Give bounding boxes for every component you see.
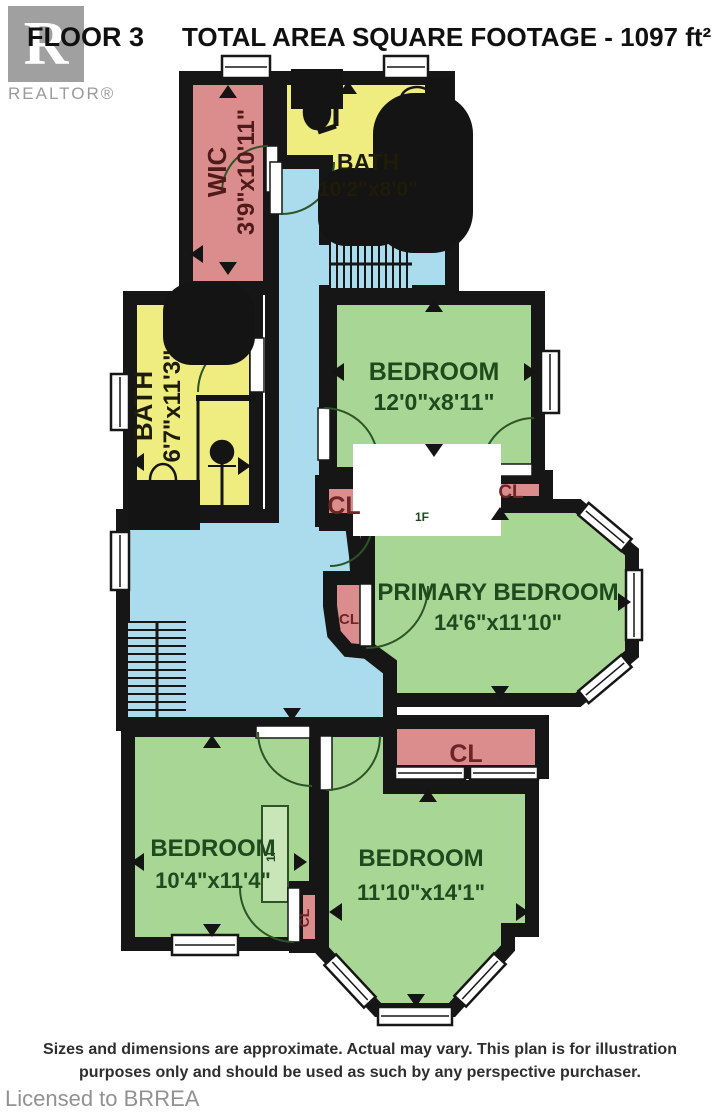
room-label: CL xyxy=(449,740,482,768)
room-label: CL xyxy=(498,482,524,503)
room-label: 14'6"x11'10" xyxy=(434,610,562,635)
window xyxy=(626,570,642,640)
window xyxy=(378,1007,452,1025)
room-label: BATH xyxy=(337,149,399,175)
room-label: CL xyxy=(296,908,312,927)
room-label: BEDROOM xyxy=(150,835,275,862)
room-label: 1F xyxy=(415,510,429,524)
fixture xyxy=(304,95,330,129)
room-label: 1F xyxy=(264,848,278,862)
room-label: CL xyxy=(339,611,359,628)
room-label: BEDROOM xyxy=(369,358,500,386)
window xyxy=(395,767,465,780)
license-watermark: Licensed to BRREA xyxy=(5,1086,199,1112)
disclaimer-line-1: Sizes and dimensions are approximate. Ac… xyxy=(0,1038,720,1061)
room-label: 3'9"x10'11" xyxy=(233,109,260,235)
room-label: BATH xyxy=(128,371,158,441)
room-label: 11'10"x14'1" xyxy=(357,880,485,905)
room-label: 6'7"x11'3" xyxy=(159,350,186,463)
window xyxy=(470,767,538,780)
fixture xyxy=(421,204,426,209)
door-leaf xyxy=(320,736,332,790)
fixture xyxy=(207,328,211,332)
room-label: 10'2"x8'0" xyxy=(318,178,418,201)
window xyxy=(172,935,238,955)
page-title: TOTAL AREA SQUARE FOOTAGE - 1097 ft² xyxy=(182,22,711,53)
window xyxy=(111,374,129,430)
room-label: BEDROOM xyxy=(358,845,483,872)
room-label: 10'4"x11'4" xyxy=(155,868,271,893)
door-leaf xyxy=(270,162,282,214)
window xyxy=(222,56,270,78)
door-leaf xyxy=(318,408,330,460)
window xyxy=(111,532,129,590)
floor-plan: WIC3'9"x10'11"BATH10'2"x8'0"BATH6'7"x11'… xyxy=(0,0,720,1114)
disclaimer-line-2: purposes only and should be used as such… xyxy=(0,1061,720,1084)
floor-label: FLOOR 3 xyxy=(27,22,144,53)
fixture xyxy=(211,441,233,463)
room-label: PRIMARY BEDROOM xyxy=(377,579,618,606)
stairs xyxy=(128,622,186,718)
fixture xyxy=(390,481,464,499)
room-label: WIC xyxy=(202,147,232,198)
room-label: 12'0"x8'11" xyxy=(373,389,494,415)
window xyxy=(541,351,559,413)
floor-plan-canvas: WIC3'9"x10'11"BATH10'2"x8'0"BATH6'7"x11'… xyxy=(0,0,720,1114)
door-leaf xyxy=(256,726,310,738)
realtor-brand-text: REALTOR® xyxy=(8,84,115,104)
room-label: CL xyxy=(327,492,360,520)
door-leaf xyxy=(360,584,372,646)
window xyxy=(384,56,428,78)
disclaimer: Sizes and dimensions are approximate. Ac… xyxy=(0,1038,720,1084)
fixture xyxy=(360,212,364,216)
